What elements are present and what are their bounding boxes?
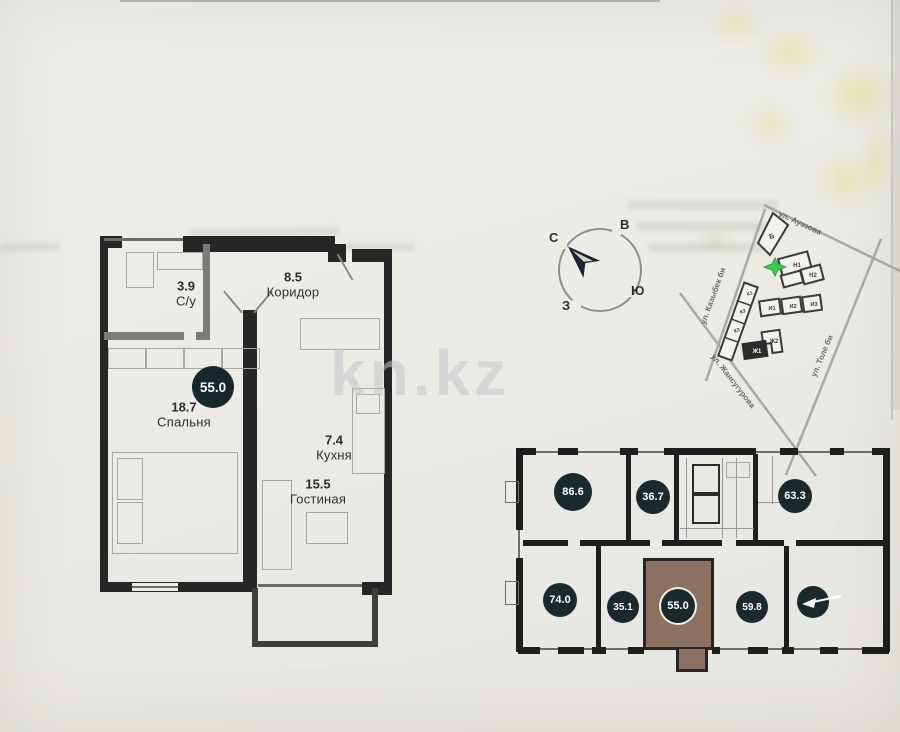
unit-area-value: 86.6 bbox=[562, 486, 583, 498]
corridor-wall bbox=[736, 540, 784, 546]
unit-area-badge: 36.7 bbox=[636, 480, 670, 514]
stair-line bbox=[722, 458, 723, 538]
unit-area-badge: 86.6 bbox=[554, 473, 592, 511]
wall-segment bbox=[592, 647, 606, 654]
unit-area-badge: 35.1 bbox=[607, 591, 639, 623]
unit-area-value: 63.3 bbox=[784, 490, 805, 502]
corridor-wall bbox=[796, 540, 883, 546]
corridor-wall bbox=[523, 540, 568, 546]
unit-divider-wall bbox=[784, 546, 789, 647]
wall-segment bbox=[748, 647, 768, 654]
building-floor-layout: 86.6 36.7 63.3 74.0 35.1 55.0 59.8 bbox=[0, 0, 900, 732]
cursor-scribble-icon bbox=[799, 592, 843, 616]
balcony-bump bbox=[505, 481, 519, 503]
unit-divider-wall bbox=[674, 454, 679, 540]
wall-segment bbox=[782, 647, 794, 654]
wall-segment bbox=[883, 448, 890, 652]
scanned-floorplan-page: 3.9 С/у 8.5 Коридор 18.7 Спальня 7.4 Кух… bbox=[0, 0, 900, 732]
unit-area-badge: 63.3 bbox=[778, 479, 812, 513]
balcony-bump bbox=[505, 581, 519, 605]
vent-shaft bbox=[726, 462, 750, 478]
window-line bbox=[518, 530, 520, 558]
unit-partition-line bbox=[772, 456, 773, 504]
unit-area-value: 35.1 bbox=[613, 602, 632, 613]
wall-segment bbox=[628, 647, 644, 654]
wall-segment bbox=[558, 448, 578, 455]
unit-area-badge-highlighted: 55.0 bbox=[661, 589, 695, 623]
unit-area-badge: 74.0 bbox=[543, 583, 577, 617]
wall-segment bbox=[830, 448, 844, 455]
corridor-wall bbox=[662, 540, 722, 546]
unit-area-value: 74.0 bbox=[549, 594, 570, 606]
highlighted-unit-55-balcony bbox=[676, 649, 708, 672]
unit-area-value: 36.7 bbox=[642, 491, 663, 503]
stair-line bbox=[686, 458, 687, 538]
unit-divider-wall bbox=[596, 546, 601, 647]
unit-area-value: 55.0 bbox=[667, 600, 688, 612]
wall-segment bbox=[820, 647, 838, 654]
wall-segment bbox=[780, 448, 798, 455]
elevator-shaft bbox=[692, 464, 720, 494]
wall-segment bbox=[558, 647, 584, 654]
unit-area-badge: 59.8 bbox=[736, 591, 768, 623]
unit-area-value: 59.8 bbox=[742, 602, 761, 613]
elevator-shaft bbox=[692, 494, 720, 524]
corridor-wall bbox=[580, 540, 650, 546]
unit-divider-wall bbox=[626, 454, 631, 540]
core-partition-line bbox=[680, 528, 754, 529]
